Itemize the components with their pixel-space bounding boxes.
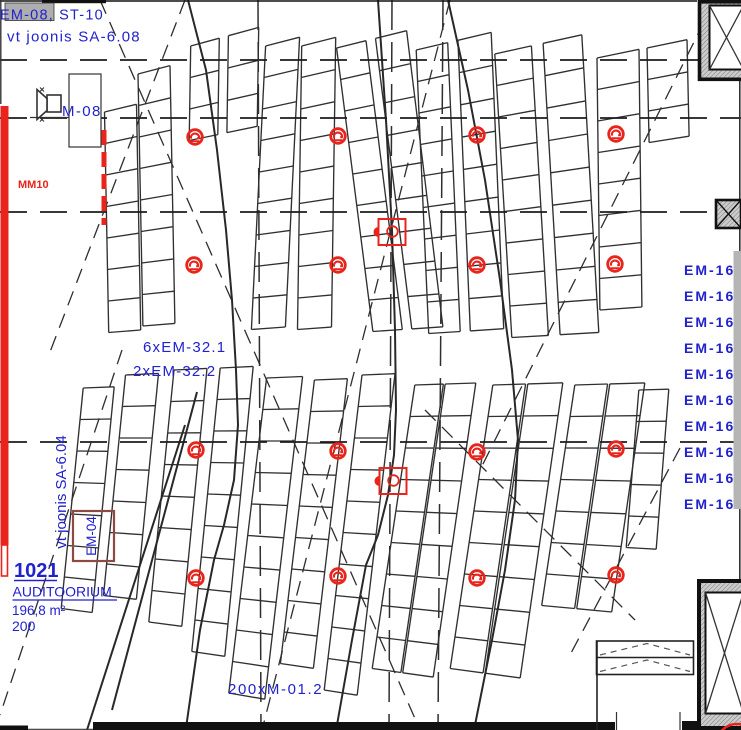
svg-text:EM-16: EM-16 — [684, 496, 735, 512]
svg-text:196,8 m²: 196,8 m² — [12, 603, 66, 618]
svg-text:EM-16: EM-16 — [684, 392, 735, 408]
svg-text:1021: 1021 — [14, 560, 59, 582]
svg-text:EM-16: EM-16 — [684, 418, 735, 434]
svg-text:EM-16: EM-16 — [684, 314, 735, 330]
svg-text:EM-16: EM-16 — [684, 470, 735, 486]
svg-text:EM-16: EM-16 — [684, 288, 735, 304]
svg-text:EM-16: EM-16 — [684, 444, 735, 460]
svg-text:EM-04: EM-04 — [84, 516, 99, 556]
svg-text:M-08: M-08 — [62, 103, 102, 120]
svg-text:vt joonis SA-6.08: vt joonis SA-6.08 — [7, 29, 141, 46]
svg-text:200: 200 — [12, 618, 36, 634]
svg-text:200xM-01.2: 200xM-01.2 — [228, 681, 323, 698]
svg-text:AUDITOORIUM: AUDITOORIUM — [13, 584, 112, 600]
svg-text:2xEM-32.2: 2xEM-32.2 — [133, 363, 216, 380]
svg-text:MM10: MM10 — [18, 179, 49, 191]
svg-text:EM-08, ST-10: EM-08, ST-10 — [0, 8, 104, 24]
svg-text:EM-16: EM-16 — [684, 262, 735, 278]
svg-text:EM-16: EM-16 — [684, 340, 735, 356]
svg-text:EM-16: EM-16 — [684, 366, 735, 382]
svg-text:vt joonis SA-6.04: vt joonis SA-6.04 — [53, 435, 70, 548]
svg-text:6xEM-32.1: 6xEM-32.1 — [143, 339, 226, 356]
